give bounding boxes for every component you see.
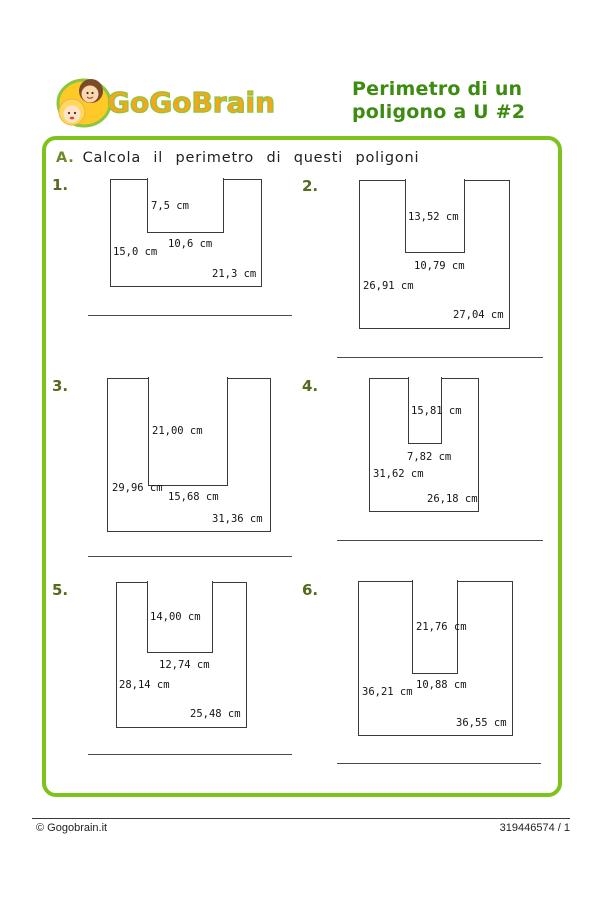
measurement-label-bottom-side: 31,36 cm xyxy=(212,513,263,525)
measurement-label-bottom-side: 21,3 cm xyxy=(212,268,256,280)
measurement-label-left-side: 29,96 cm xyxy=(112,482,163,494)
measurement-label-bottom-side: 26,18 cm xyxy=(427,493,478,505)
answer-line xyxy=(337,540,543,541)
footer-copyright: © Gogobrain.it xyxy=(36,822,107,834)
measurement-label-bottom-side: 25,48 cm xyxy=(190,708,241,720)
measurement-label-notch-width: 10,88 cm xyxy=(416,679,467,691)
measurement-label-notch-height: 14,00 cm xyxy=(150,611,201,623)
measurement-label-notch-height: 7,5 cm xyxy=(151,200,189,212)
measurement-label-notch-height: 21,76 cm xyxy=(416,621,467,633)
measurement-label-notch-height: 15,81 cm xyxy=(411,405,462,417)
measurement-label-left-side: 28,14 cm xyxy=(119,679,170,691)
worksheet-page: GoGoBrain Perimetro di un poligono a U #… xyxy=(0,0,600,900)
problem-number: 3. xyxy=(52,377,68,395)
measurement-label-notch-width: 7,82 cm xyxy=(407,451,451,463)
answer-line xyxy=(337,357,543,358)
measurement-label-bottom-side: 36,55 cm xyxy=(456,717,507,729)
problem-number: 4. xyxy=(302,377,318,395)
problem-number: 5. xyxy=(52,581,68,599)
measurement-label-notch-width: 12,74 cm xyxy=(159,659,210,671)
answer-line xyxy=(88,315,292,316)
measurement-label-notch-height: 13,52 cm xyxy=(408,211,459,223)
footer-page-ref: 319446574 / 1 xyxy=(500,822,570,834)
measurement-label-notch-height: 21,00 cm xyxy=(152,425,203,437)
measurement-label-left-side: 36,21 cm xyxy=(362,686,413,698)
measurement-label-left-side: 15,0 cm xyxy=(113,246,157,258)
problem-number: 6. xyxy=(302,581,318,599)
measurement-label-notch-width: 10,79 cm xyxy=(414,260,465,272)
footer-divider xyxy=(32,818,570,819)
answer-line xyxy=(88,754,292,755)
problems-grid: 1. 7,5 cm10,6 cm15,0 cm21,3 cm 2. 13,52 … xyxy=(0,0,600,900)
measurement-label-left-side: 26,91 cm xyxy=(363,280,414,292)
answer-line xyxy=(337,763,541,764)
measurement-label-bottom-side: 27,04 cm xyxy=(453,309,504,321)
problem-number: 1. xyxy=(52,176,68,194)
measurement-label-left-side: 31,62 cm xyxy=(373,468,424,480)
problem-number: 2. xyxy=(302,177,318,195)
answer-line xyxy=(88,556,292,557)
measurement-label-notch-width: 10,6 cm xyxy=(168,238,212,250)
measurement-label-notch-width: 15,68 cm xyxy=(168,491,219,503)
